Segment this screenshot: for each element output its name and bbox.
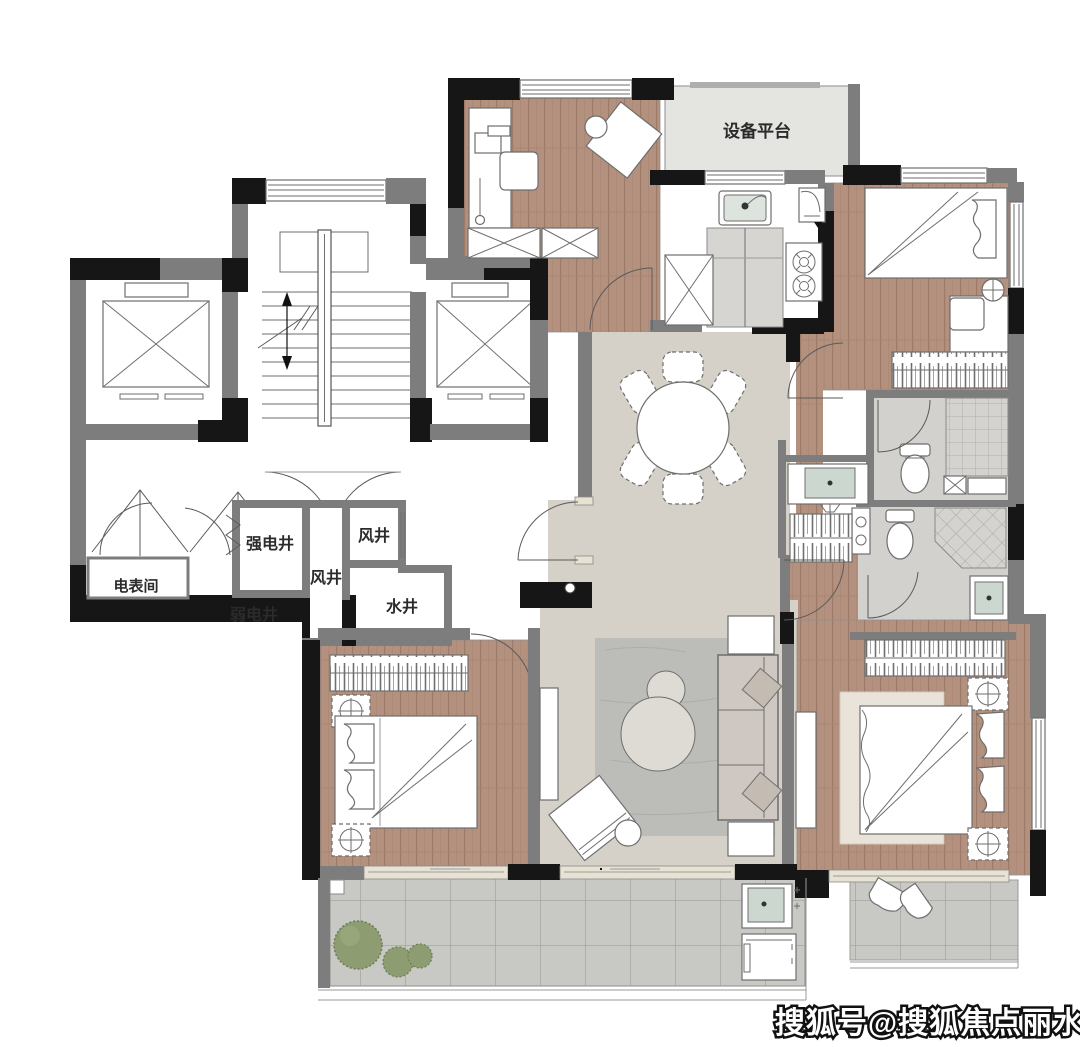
balcony-sink [742, 884, 800, 928]
service-shafts: 强电井 风井 风井 水井 弱电井 [226, 500, 452, 646]
strong-electric-shaft-label: 强电井 [246, 534, 294, 553]
washing-machine [742, 934, 796, 980]
wardrobe [330, 655, 468, 691]
sofa [718, 616, 782, 856]
table-lamp [982, 279, 1004, 301]
dining-set [617, 352, 749, 504]
water-shaft-label: 水井 [386, 597, 418, 616]
tv-cabinet [796, 712, 816, 828]
vanity [968, 478, 1006, 494]
nightstand-bottom [968, 828, 1008, 860]
floor-plan-drawing: 电表间 强电井 风井 风井 水井 弱电井 [0, 0, 1080, 1047]
weak-electric-shaft-label: 弱电井 [230, 605, 278, 624]
desk-chair [950, 298, 984, 330]
elevator-right [410, 258, 546, 442]
wall-appliance [799, 188, 825, 228]
wind-shaft-upper-label: 风井 [358, 526, 390, 545]
floor-plan-page: 电表间 强电井 风井 风井 水井 弱电井 [0, 0, 1080, 1047]
side-table-bottom [728, 822, 774, 856]
nightstand-top [968, 678, 1008, 710]
elevator-left-car [103, 301, 209, 387]
elevator-right-car [437, 301, 533, 387]
vanity [970, 576, 1008, 620]
toilet [900, 444, 930, 493]
kitchen [665, 188, 825, 327]
tv-cabinet [540, 688, 558, 800]
bed [335, 716, 477, 828]
elevator-left-counterweight [125, 283, 188, 297]
stool [615, 820, 641, 846]
meter-room-label: 电表间 [113, 577, 158, 595]
refrigerator [665, 255, 713, 325]
storage-cabinets [468, 228, 598, 258]
wardrobe [892, 352, 1008, 388]
wind-shaft-center-label: 风井 [310, 568, 342, 587]
dining-table [637, 382, 729, 474]
floor-lamp [476, 216, 485, 225]
nightstand-bottom [332, 824, 370, 856]
watermark: 搜狐号@搜狐焦点丽水站 [775, 1006, 1080, 1040]
stairwell [232, 178, 426, 540]
bed [865, 188, 1007, 278]
shower-area [946, 398, 1008, 476]
hall-cabinet [790, 514, 852, 562]
bedroom-bottom-left [330, 655, 477, 856]
wardrobe [865, 640, 1005, 676]
side-table-round [585, 116, 607, 138]
entry-floor [548, 500, 592, 584]
desk-chair [500, 152, 538, 190]
laundry-point [852, 508, 870, 554]
equipment-platform-label: 设备平台 [723, 121, 791, 141]
side-table-top [728, 616, 774, 654]
stove [786, 243, 822, 301]
toilet [886, 510, 914, 559]
elevator-right-counterweight [452, 283, 508, 297]
kitchen-sink [719, 191, 771, 225]
